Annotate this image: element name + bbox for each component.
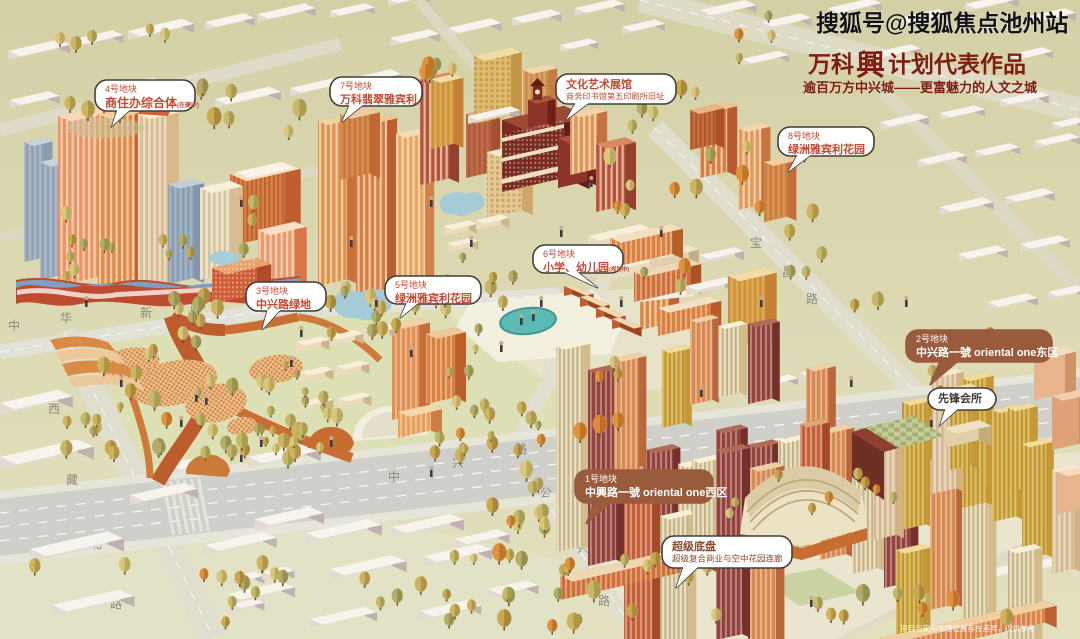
svg-text:商务印书馆第五印刷所旧址: 商务印书馆第五印刷所旧址	[566, 91, 664, 101]
svg-text:5号地块: 5号地块	[395, 279, 427, 290]
svg-text:中: 中	[388, 469, 400, 484]
svg-text:逾百万方中兴城——更富魅力的人文之城: 逾百万方中兴城——更富魅力的人文之城	[803, 80, 1037, 95]
svg-text:绿洲雅宾利花园: 绿洲雅宾利花园	[395, 291, 472, 305]
svg-text:3号地块: 3号地块	[256, 285, 288, 296]
svg-text:中興路一號 oriental one西区: 中興路一號 oriental one西区	[585, 485, 727, 499]
svg-text:2号地块: 2号地块	[916, 333, 948, 344]
svg-text:华: 华	[60, 311, 72, 325]
svg-text:路: 路	[806, 291, 818, 306]
svg-text:中兴路绿地: 中兴路绿地	[256, 297, 311, 311]
svg-text:6号地块: 6号地块	[543, 248, 575, 259]
svg-text:超级复合商业与空中花园连廊: 超级复合商业与空中花园连廊	[672, 554, 783, 564]
svg-text:宝: 宝	[750, 236, 762, 250]
svg-text:8号地块: 8号地块	[788, 130, 820, 141]
svg-text:万科翡翠雅宾利: 万科翡翠雅宾利	[339, 92, 417, 106]
svg-text:西: 西	[48, 402, 60, 416]
svg-text:中: 中	[8, 318, 20, 333]
svg-text:新: 新	[140, 305, 152, 320]
svg-text:计划代表作品: 计划代表作品	[888, 51, 1026, 77]
svg-text:项目与实际地理位置存在差异，仅供参考: 项目与实际地理位置存在差异，仅供参考	[900, 623, 1035, 633]
svg-text:藏: 藏	[66, 473, 78, 487]
svg-text:万科: 万科	[808, 51, 854, 77]
svg-text:中兴路一號 oriental one东区: 中兴路一號 oriental one东区	[916, 345, 1058, 359]
svg-text:7号地块: 7号地块	[340, 80, 372, 91]
svg-text:4号地块: 4号地块	[105, 83, 137, 94]
svg-text:興: 興	[856, 49, 885, 82]
svg-text:绿洲雅宾利花园: 绿洲雅宾利花园	[788, 142, 865, 156]
svg-text:先锋会所: 先锋会所	[938, 391, 982, 405]
svg-text:1号地块: 1号地块	[585, 473, 617, 484]
svg-text:搜狐号@搜狐焦点池州站: 搜狐号@搜狐焦点池州站	[816, 10, 1068, 36]
svg-text:文化艺术展馆: 文化艺术展馆	[566, 77, 632, 91]
svg-text:路: 路	[598, 593, 610, 608]
svg-text:超级底盘: 超级底盘	[671, 539, 716, 553]
